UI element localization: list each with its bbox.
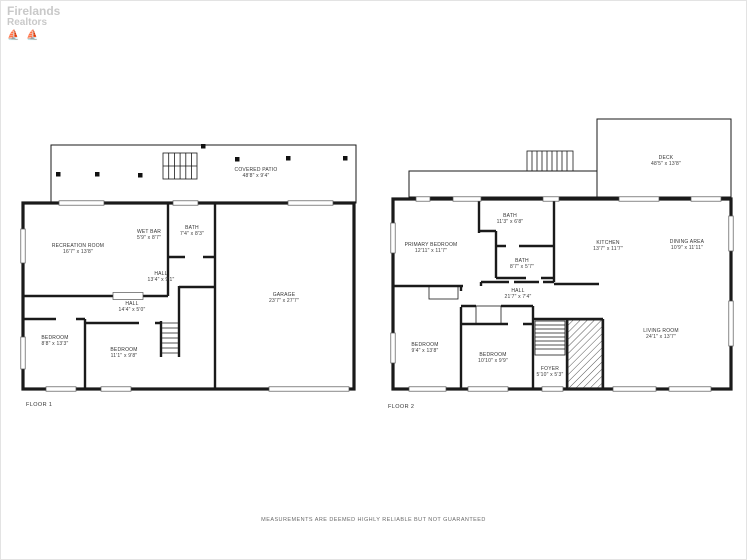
room-dims: 10'10" x 9'9"	[478, 358, 508, 364]
floor1-label: FLOOR 1	[26, 402, 52, 408]
room-label-hall-f1a: HALL 13'4" x 9'1"	[147, 271, 174, 283]
room-label-recreation-room: RECREATION ROOM 16'7" x 13'8"	[52, 243, 104, 255]
room-dims: 16'7" x 13'8"	[52, 249, 104, 255]
room-label-bath-f1: BATH 7'4" x 8'3"	[180, 225, 204, 237]
room-label-bedroom-f1a: BEDROOM 8'8" x 13'3"	[41, 335, 68, 347]
deck-outline	[409, 119, 731, 197]
floorplan-drawing	[1, 1, 747, 560]
room-label-bath-f2b: BATH 8'7" x 5'7"	[510, 258, 534, 270]
room-label-bedroom-f2b: BEDROOM 10'10" x 9'9"	[478, 352, 508, 364]
room-label-living-room: LIVING ROOM 24'1" x 13'7"	[643, 328, 679, 340]
room-label-covered-patio: COVERED PATIO 48'8" x 9'4"	[235, 167, 278, 179]
room-dims: 11'1" x 9'8"	[110, 353, 137, 359]
room-dims: 48'5" x 13'8"	[651, 161, 681, 167]
room-dims: 5'10" x 5'3"	[536, 372, 563, 378]
stairs-icon	[163, 153, 197, 179]
floor2-outer-walls	[393, 199, 731, 389]
stairwell-hatch	[568, 320, 602, 388]
room-dims: 14'4" x 5'0"	[118, 307, 145, 313]
room-label-hall-f1b: HALL 14'4" x 5'0"	[118, 301, 145, 313]
room-dims: 21'7" x 7'4"	[504, 294, 531, 300]
floor1-plan	[21, 144, 356, 391]
measurement-disclaimer: MEASUREMENTS ARE DEEMED HIGHLY RELIABLE …	[1, 517, 746, 523]
room-label-kitchen: KITCHEN 13'7" x 11'7"	[593, 240, 623, 252]
room-dims: 13'4" x 9'1"	[147, 277, 174, 283]
room-label-deck: DECK 48'5" x 13'8"	[651, 155, 681, 167]
room-dims: 9'4" x 13'8"	[411, 348, 438, 354]
floor1-stairs	[161, 323, 179, 353]
room-label-hall-f2: HALL 21'7" x 7'4"	[504, 288, 531, 300]
patio-posts	[56, 144, 348, 178]
room-dims: 10'9" x 11'11"	[670, 245, 704, 251]
room-label-dining-area: DINING AREA 10'9" x 11'11"	[670, 239, 704, 251]
room-dims: 8'7" x 5'7"	[510, 264, 534, 270]
floor2-plan	[391, 119, 733, 391]
stairs-icon	[527, 151, 573, 171]
room-label-bedroom-f2a: BEDROOM 9'4" x 13'8"	[411, 342, 438, 354]
room-dims: 13'7" x 11'7"	[593, 246, 623, 252]
room-label-foyer: FOYER 5'10" x 5'3"	[536, 366, 563, 378]
room-label-bath-f2a: BATH 11'3" x 6'8"	[497, 213, 524, 225]
room-dims: 11'3" x 6'8"	[497, 219, 524, 225]
room-dims: 23'7" x 27'7"	[269, 298, 299, 304]
room-label-wet-bar: WET BAR 5'9" x 8'7"	[137, 229, 161, 241]
room-dims: 5'9" x 8'7"	[137, 235, 161, 241]
room-dims: 12'11" x 11'7"	[405, 248, 458, 254]
room-label-primary-bedroom: PRIMARY BEDROOM 12'11" x 11'7"	[405, 242, 458, 254]
room-label-garage: GARAGE 23'7" x 27'7"	[269, 292, 299, 304]
floor2-label: FLOOR 2	[388, 404, 414, 410]
room-dims: 48'8" x 9'4"	[235, 173, 278, 179]
room-dims: 24'1" x 13'7"	[643, 334, 679, 340]
floor2-stairs	[535, 321, 565, 355]
floorplan-page: Firelands Realtors ⛵ ⛵	[0, 0, 747, 560]
room-dims: 7'4" x 8'3"	[180, 231, 204, 237]
floor2-windows	[391, 197, 733, 391]
room-label-bedroom-f1b: BEDROOM 11'1" x 9'8"	[110, 347, 137, 359]
room-dims: 8'8" x 13'3"	[41, 341, 68, 347]
